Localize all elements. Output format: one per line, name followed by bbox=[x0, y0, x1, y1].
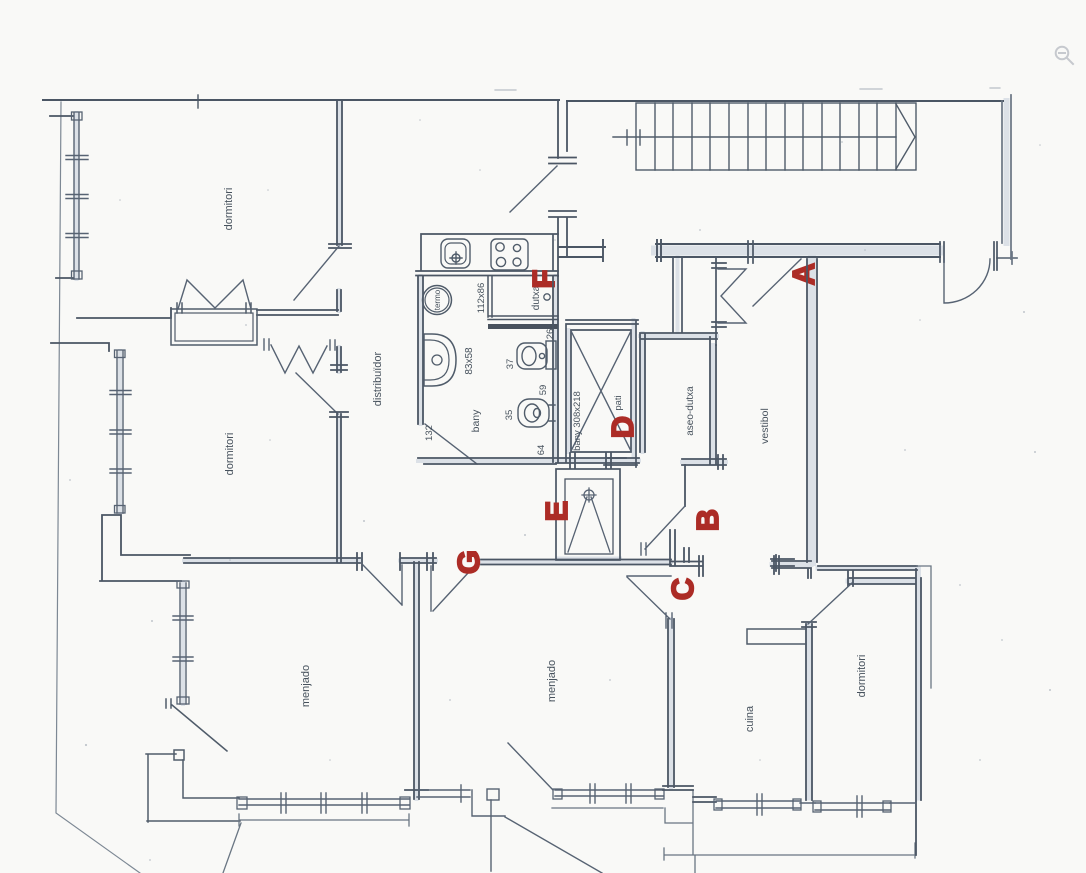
svg-text:aseo-dutxa: aseo-dutxa bbox=[685, 386, 696, 436]
svg-text:menjado: menjado bbox=[546, 660, 558, 702]
svg-text:B: B bbox=[690, 509, 725, 531]
svg-text:C: C bbox=[665, 578, 700, 600]
svg-text:132: 132 bbox=[424, 425, 435, 441]
svg-text:bany 308x218: bany 308x218 bbox=[572, 391, 583, 451]
svg-text:cuina: cuina bbox=[744, 705, 756, 732]
svg-text:D: D bbox=[605, 416, 640, 438]
svg-text:dormitori: dormitori bbox=[224, 433, 236, 476]
svg-text:83x58: 83x58 bbox=[464, 347, 475, 375]
svg-text:59: 59 bbox=[538, 385, 549, 396]
svg-text:112x86: 112x86 bbox=[476, 283, 487, 313]
svg-text:35: 35 bbox=[504, 410, 515, 421]
svg-text:G: G bbox=[451, 550, 486, 574]
svg-text:F: F bbox=[526, 270, 561, 289]
svg-text:26: 26 bbox=[545, 329, 556, 340]
svg-text:pati: pati bbox=[613, 395, 624, 410]
svg-text:A: A bbox=[786, 263, 821, 285]
svg-text:E: E bbox=[539, 501, 574, 522]
svg-text:bany: bany bbox=[470, 409, 482, 433]
svg-text:vestibol: vestibol bbox=[759, 408, 771, 444]
svg-text:distribuïdor: distribuïdor bbox=[372, 351, 384, 406]
svg-text:dormitori: dormitori bbox=[856, 655, 868, 698]
svg-text:termo: termo bbox=[433, 289, 442, 310]
svg-text:64: 64 bbox=[536, 445, 547, 456]
svg-text:menjado: menjado bbox=[300, 665, 312, 707]
svg-text:37: 37 bbox=[505, 359, 516, 370]
svg-text:dormitori: dormitori bbox=[223, 188, 235, 231]
